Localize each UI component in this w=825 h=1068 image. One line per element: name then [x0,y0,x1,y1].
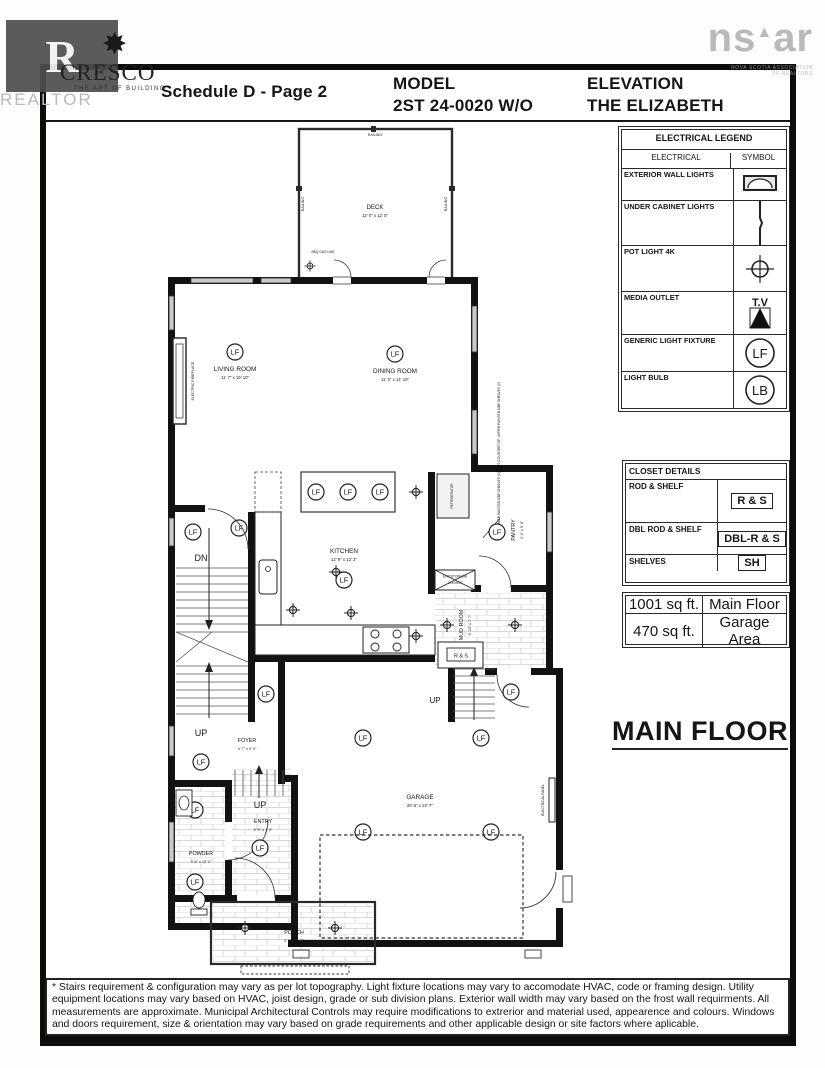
model-value: 2ST 24-0020 W/O [393,96,533,116]
living-room-dims: 11' 7" x 19' 10" [221,375,249,380]
railing-label-left: RAILING [301,197,305,212]
light-fixture-icon [258,686,274,702]
legend-row-media-outlet: MEDIA OUTLET T.V [622,292,786,335]
garage-up-label: UP [429,696,440,705]
stairs-up-label: UP [195,728,208,738]
deck-label: DECK [367,205,384,211]
cresco-star-icon: ✸ [102,30,210,60]
living-room-label: LIVING ROOM [214,366,257,373]
bbq-gas-symbol [304,260,315,271]
rod-shelf-tag: R & S [731,493,772,509]
light-fixture-icon [355,730,371,746]
legend-row-under-cabinet-lights: UNDER CABINET LIGHTS [622,201,786,246]
legend-col-symbol: SYMBOL [731,153,786,168]
cresco-tagline: THE ART OF BUILDING [74,86,210,92]
porch-label: PORCH [284,930,304,936]
electrical-panel-label: ELECTRICAL PANEL [541,784,545,816]
light-fixture-icon [187,874,203,890]
legend-label: GENERIC LIGHT FIXTURE [622,335,734,371]
closet-label: DBL ROD & SHELF [626,523,718,554]
legend-row-exterior-wall-lights: EXTERIOR WALL LIGHTS [622,169,786,201]
mud-room-label: MUD ROOM [459,609,465,640]
elevation-label: ELEVATION [587,74,684,94]
nsar-caption-2: OF REALTORS [708,71,813,77]
light-fixture-icon [340,484,356,500]
foyer-label: FOYER [238,738,257,744]
legend-label: LIGHT BULB [622,372,734,408]
light-fixture-icon [231,520,247,536]
closet-details-panel: CLOSET DETAILS ROD & SHELF R & S DBL ROD… [622,460,790,586]
light-fixture-icon [503,684,519,700]
dining-room-label: DINING ROOM [373,368,417,375]
legend-label: UNDER CABINET LIGHTS [622,201,734,245]
room-deck: RAILING RAILING RAILING DECK 12' 0" x 12… [296,126,455,279]
pot-light-icon [344,606,358,620]
closet-row-shelves: SHELVES SH [626,555,786,571]
light-fixture-icon: LF [742,335,778,371]
kitchen-dims: 12' 9" x 12' 2" [331,557,357,562]
elevation-value: THE ELIZABETH [587,96,724,116]
plan-svg: LF RAILING RAILING RAILING DECK 12' 0" x… [163,120,615,976]
shelf-note: LOWER PAINTED MDF SHELVES (3) PLUS COUNT… [497,382,501,528]
electrical-legend-title: ELECTRICAL LEGEND [622,130,786,150]
pot-light-icon [286,603,300,617]
porch-dims: 4' 7" x 5' 11" [284,939,305,943]
area-row-main-floor: 1001 sq ft. Main Floor [626,596,786,614]
light-bulb-icon: LB [742,372,778,408]
electrical-legend-columns: ELECTRICAL SYMBOL [622,150,786,169]
main-floor-area-name: Main Floor [703,596,786,613]
light-fixture-icon [227,344,243,360]
closet-label: SHELVES [626,555,718,571]
garage-label: GARAGE [406,794,433,801]
garage-area-name: Garage Area [703,614,786,648]
under-cabinet-light-icon [750,198,770,248]
area-table: 1001 sq ft. Main Floor 470 sq ft. Garage… [622,592,790,648]
pot-light-icon [409,485,423,499]
light-fixture-icon [355,824,371,840]
entry-up-label: UP [254,800,267,810]
entry-label: ENTRY [254,819,273,825]
main-floor-area-value: 1001 sq ft. [626,596,703,613]
footer-disclaimer: * Stairs requirement & configuration may… [45,978,790,1036]
kitchen-label: KITCHEN [330,548,358,555]
light-fixture-icon [489,524,505,540]
legend-label: EXTERIOR WALL LIGHTS [622,169,734,200]
lb-symbol-text: LB [752,383,768,398]
light-fixture-icon [193,754,209,770]
legend-label: MEDIA OUTLET [622,292,734,334]
patio-door-arcs [334,260,446,277]
floor-plan-drawing: LF RAILING RAILING RAILING DECK 12' 0" x… [163,120,615,976]
legend-label: POT LIGHT 4K [622,246,734,291]
pantry-label: PANTRY [511,519,517,541]
floor-plan-sheet: { "header": { "schedule": "Schedule D - … [0,0,825,1068]
cresco-name: CRESCO [60,60,210,86]
pantry-door-arc [479,556,511,588]
light-fixture-icon [252,840,268,856]
dining-room-dims: 11' 5" x 14' 10" [381,377,409,382]
foyer-dims: 4' 7" x 9' 0" [238,747,257,751]
pantry-dims: 4' 4" x 5' 6" [520,520,524,539]
powder-label: POWDER [189,851,213,857]
railing-label-top: RAILING [368,133,383,137]
refrigerator-label: REFRIGERATOR [450,483,454,509]
media-outlet-icon: T.V [742,294,778,332]
stairs-dn-label: DN [195,553,208,563]
legend-row-light-bulb: LIGHT BULB LB [622,372,786,408]
closet-details-title: CLOSET DETAILS [626,464,786,480]
closet-label: ROD & SHELF [626,480,718,522]
electric-fireplace: ELECTRIC FIREPLACE [173,338,195,424]
nsar-caret-icon: ▲ [756,15,773,51]
room-pantry: PANTRY 4' 4" x 5' 6" [479,519,524,588]
mud-room-dims: 5' 10" x 7' 7" [468,614,472,635]
model-label: MODEL [393,74,455,94]
cresco-logo: ✸ CRESCO THE ART OF BUILDING [60,30,210,92]
light-fixture-icon [387,346,403,362]
legend-col-electrical: ELECTRICAL [622,153,731,168]
pot-light-icon [743,254,777,284]
nsar-ar: ar [773,16,813,60]
light-fixture-icon [483,824,499,840]
storage-locker-label: ENT/STORAGE [443,575,468,579]
stairs-main [176,528,248,718]
nsar-logo: ns▲ar NOVA SCOTIA ASSOCIATION OF REALTOR… [708,20,813,77]
tv-symbol-text: T.V [752,297,769,309]
closet-row-dbl-rod-shelf: DBL ROD & SHELF DBL-R & S [626,523,786,555]
garage-dims: 20' 6" x 22' 7" [407,803,433,808]
lf-symbol-text: LF [752,346,767,361]
shelves-tag: SH [738,555,765,571]
entry-dims: 5' 5" x 7' 9" [254,828,273,832]
light-fixture-icon [185,524,201,540]
deck-dims: 12' 0" x 12' 0" [362,213,388,218]
legend-row-generic-light-fixture: GENERIC LIGHT FIXTURE LF [622,335,786,372]
area-row-garage: 470 sq ft. Garage Area [626,614,786,648]
storage-locker-label2: LOCKER [448,581,462,585]
realtor-watermark: REALTOR [0,90,93,110]
porch-steps [241,966,349,974]
main-floor-title: MAIN FLOOR [612,716,788,750]
rod-shelf-closet-tag: R & S [454,654,468,660]
exterior-wall-light-icon [740,174,780,194]
closet-row-rod-shelf: ROD & SHELF R & S [626,480,786,523]
powder-dims: 3' 6" x 10' 2" [191,860,212,864]
light-fixture-icon [372,484,388,500]
railing-label-right: RAILING [444,197,448,212]
legend-row-pot-light-4k: POT LIGHT 4K [622,246,786,292]
nsar-wordmark: ns▲ar [708,20,813,65]
light-fixture-icon [308,484,324,500]
electric-fireplace-label: ELECTRIC FIREPLACE [191,361,195,400]
garage-side-door-arc [520,872,556,908]
garage-area-value: 470 sq ft. [626,614,703,648]
electrical-legend-panel: ELECTRICAL LEGEND ELECTRICAL SYMBOL EXTE… [618,126,790,412]
nsar-ns: ns [708,16,757,60]
bbq-gas-line-note: BBQ GAS LINE [311,250,335,254]
light-fixture-icon [473,730,489,746]
dbl-rod-shelf-tag: DBL-R & S [718,531,786,547]
